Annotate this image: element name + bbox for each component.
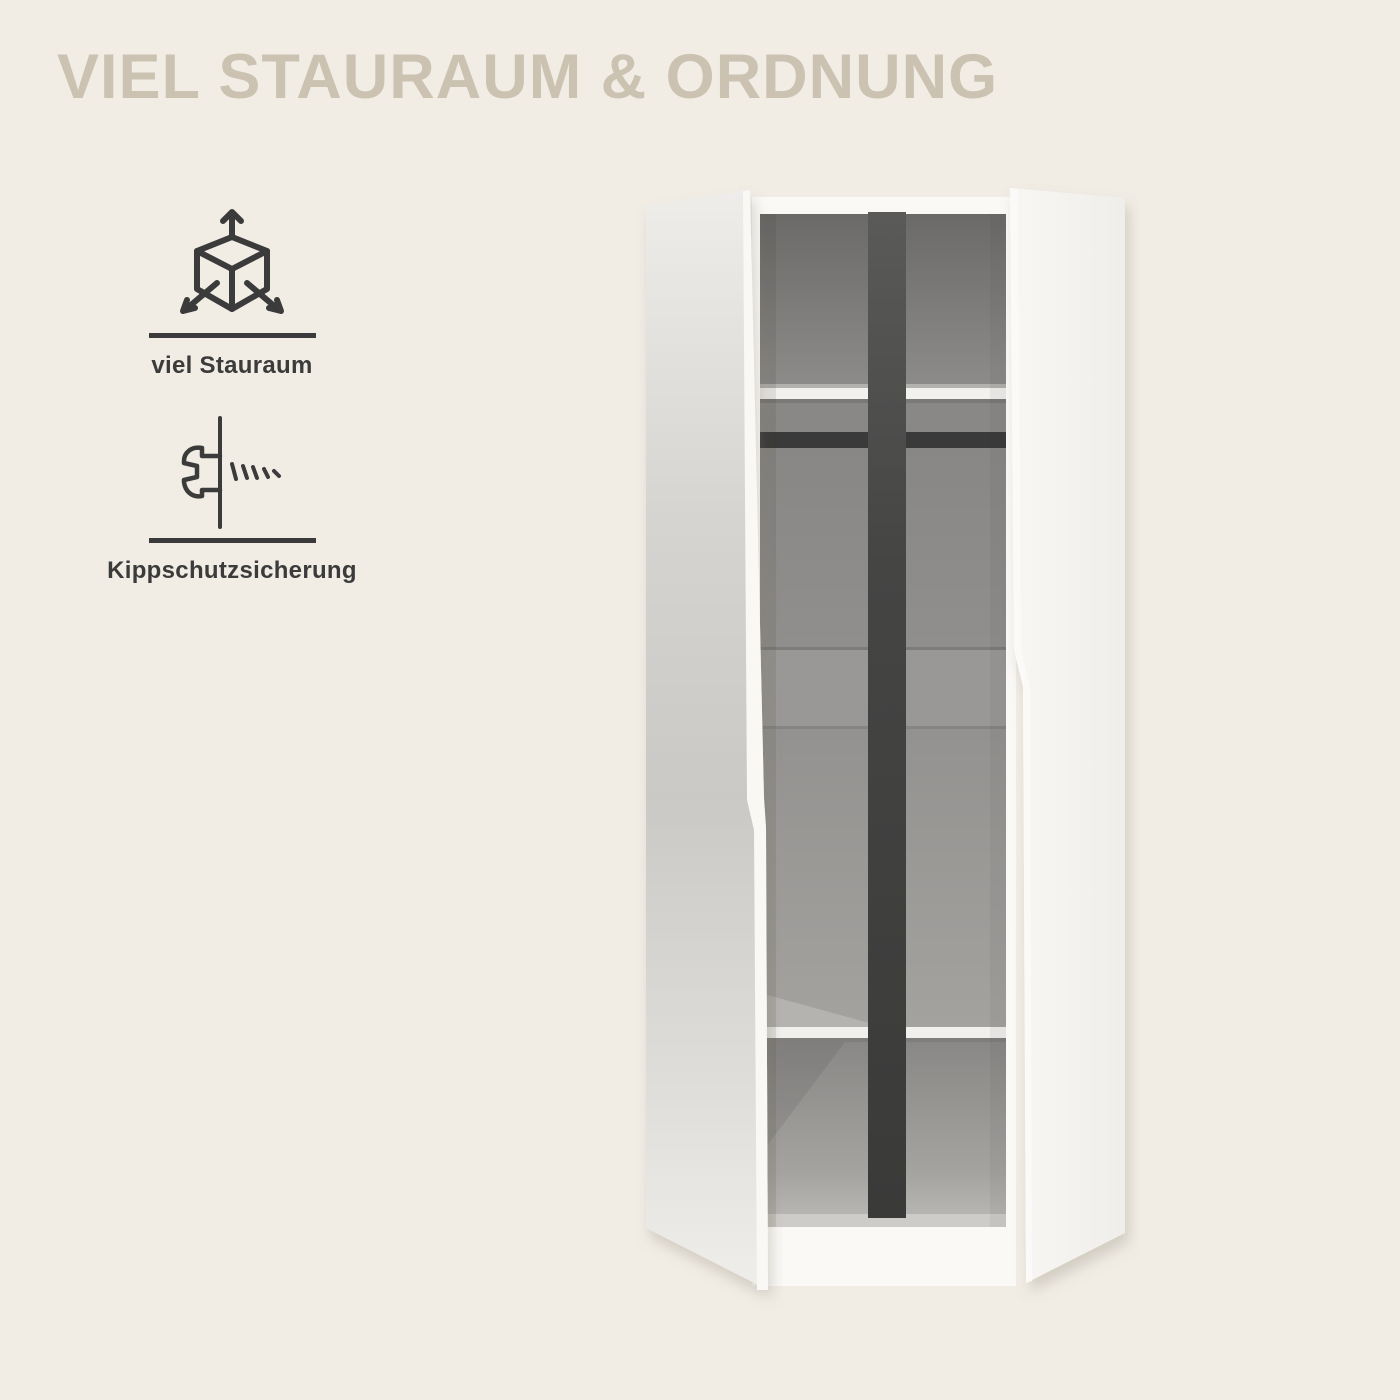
feature-divider-line (149, 538, 316, 543)
feature-label-storage: viel Stauraum (92, 352, 372, 380)
center-divider (868, 212, 906, 1218)
feature-item-anti-tip: Kippschutzsicherung (92, 414, 372, 585)
screw-anti-tip-icon (180, 414, 285, 530)
feature-item-storage: viel Stauraum (92, 207, 372, 380)
feature-divider-line (149, 333, 316, 338)
cube-3d-arrows-icon (162, 207, 302, 319)
feature-label-anti-tip: Kippschutzsicherung (92, 557, 372, 585)
product-feature-page: VIEL STAURAUM & ORDNUNG (0, 0, 1400, 1400)
